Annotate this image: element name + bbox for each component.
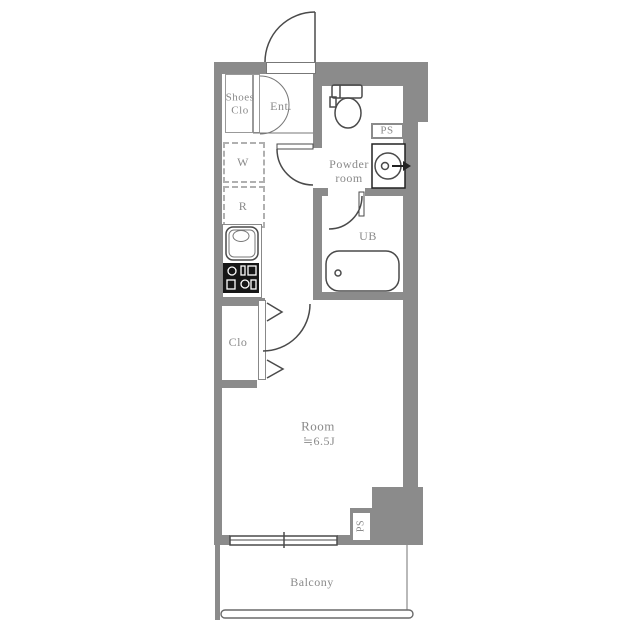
balcony-window [230, 532, 337, 548]
powder-room-door-swing [277, 144, 313, 185]
wall-powder-ub-stub [322, 188, 328, 196]
room-door-swing [263, 304, 310, 351]
label-room-size: ≒6.5J [303, 435, 335, 449]
unit-bath-door-swing [329, 192, 364, 229]
wall-corridor-right [313, 188, 322, 300]
label-balcony: Balcony [290, 576, 334, 590]
closet-front [258, 300, 266, 380]
bathtub-icon [326, 251, 399, 291]
label-pipe-space-bottom: PS [355, 520, 367, 532]
label-pipe-space-top: PS [380, 125, 393, 138]
closet-folding-door-icon [267, 303, 283, 378]
wall-powder-ub-right [365, 188, 405, 196]
wall-balcony-left [215, 545, 220, 620]
label-closet: Clo [229, 336, 248, 350]
label-entrance: Ent. [270, 100, 292, 114]
toilet-icon [330, 85, 362, 128]
label-powder-room: Powderroom [329, 158, 369, 186]
label-room-name: Room [301, 420, 335, 435]
wall-bottom-mid [337, 535, 350, 545]
wall-bottom-right-block [372, 487, 423, 545]
label-fridge-space: R [239, 200, 248, 214]
entrance-door-swing [265, 12, 315, 62]
kitchen-counter [222, 224, 262, 298]
label-washer-space: W [237, 156, 249, 170]
floor-plan: ShoesClo Ent. Powderroom PS W R UB Clo R… [0, 0, 640, 640]
wall-top-right-block [403, 62, 428, 122]
wall-top-mid [315, 62, 403, 86]
label-unit-bath: UB [359, 230, 377, 244]
wall-below-closet [214, 380, 257, 388]
wall-entrance-right [313, 74, 322, 148]
entrance-door-sill [266, 62, 316, 74]
wall-ub-room-divider [313, 292, 418, 300]
label-shoes-closet: ShoesClo [226, 91, 255, 116]
wall-right [403, 122, 418, 492]
